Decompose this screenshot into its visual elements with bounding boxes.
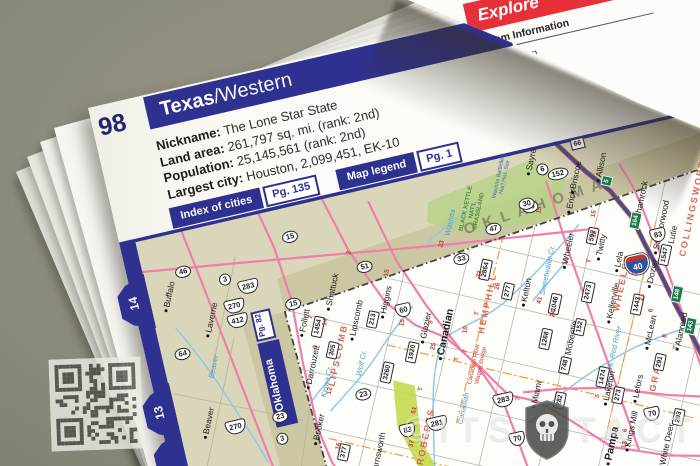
distance-label: 10 <box>461 325 469 334</box>
distance-label: 23 <box>475 270 483 279</box>
region-name: /Western <box>212 69 295 108</box>
distance-label: 15 <box>383 269 391 278</box>
distance-label: 14 <box>321 318 329 327</box>
page-number: 98 <box>96 108 130 143</box>
distance-label: 12 <box>326 387 334 396</box>
distance-label: 15 <box>535 206 543 215</box>
distance-label: 41 <box>536 296 544 305</box>
distance-label: 23 <box>437 240 445 249</box>
distance-label: 16 <box>334 442 342 451</box>
distance-label: 15 <box>398 319 406 328</box>
distance-label: 12 <box>590 230 598 239</box>
watermark-text: TACTICAL <box>574 410 700 450</box>
its-watermark: ©ITS TACTICAL <box>404 400 700 460</box>
watermark-text: ©ITS <box>404 410 520 450</box>
distance-label: 25 <box>429 342 437 351</box>
distance-label: 24 <box>549 309 557 318</box>
distance-label: 10 <box>562 257 570 266</box>
qr-code-watermark <box>48 356 143 451</box>
atlas-photo: (8 w 98 Texas/Western Nickname: The Lone… <box>0 0 700 466</box>
state-name: Texas <box>158 87 217 121</box>
distance-label: 21 <box>638 293 646 302</box>
skull-shield-icon <box>524 400 570 460</box>
distance-label: 26 <box>493 282 501 291</box>
